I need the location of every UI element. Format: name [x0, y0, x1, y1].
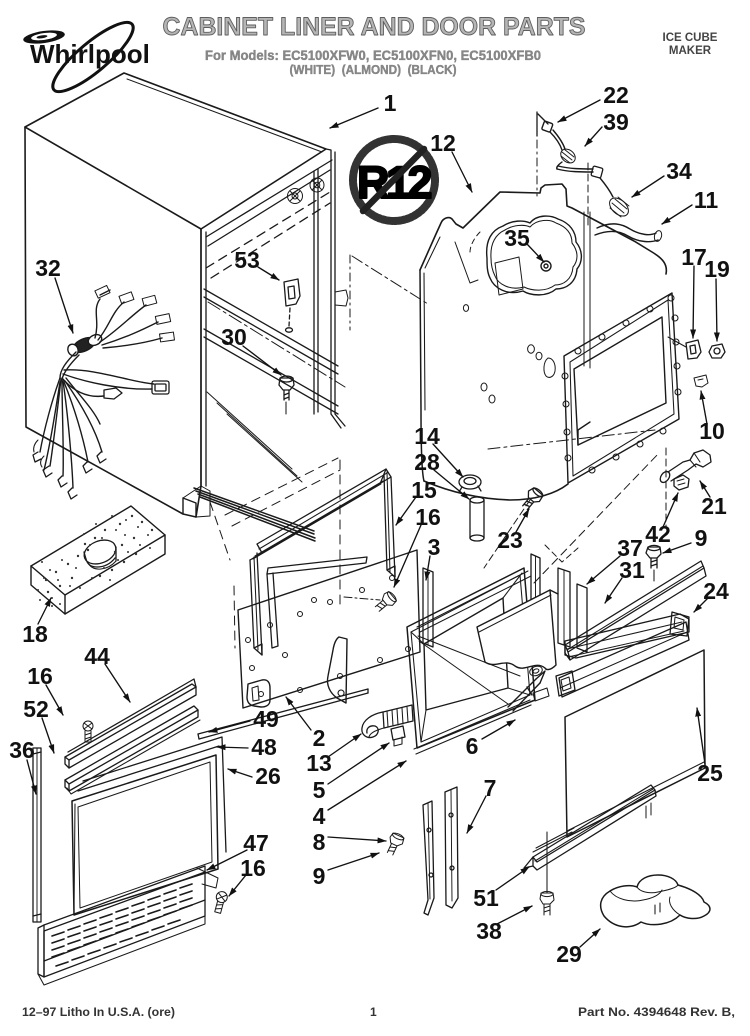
svg-text:44: 44 — [84, 643, 110, 669]
svg-text:36: 36 — [9, 737, 35, 763]
svg-text:16: 16 — [27, 663, 53, 689]
svg-text:19: 19 — [704, 256, 730, 282]
svg-text:53: 53 — [234, 247, 260, 273]
svg-text:12–97 Litho In U.S.A. (ore): 12–97 Litho In U.S.A. (ore) — [22, 1005, 175, 1019]
svg-text:3: 3 — [428, 534, 441, 560]
svg-text:For Models: EC5100XFW0, EC5100: For Models: EC5100XFW0, EC5100XFN0, EC51… — [205, 48, 541, 63]
svg-text:26: 26 — [255, 763, 281, 789]
svg-text:49: 49 — [253, 706, 279, 732]
svg-text:14: 14 — [414, 423, 440, 449]
svg-text:12: 12 — [430, 130, 456, 156]
svg-text:11: 11 — [694, 187, 719, 213]
svg-text:17: 17 — [681, 244, 707, 270]
svg-text:42: 42 — [645, 521, 671, 547]
svg-text:16: 16 — [240, 855, 266, 881]
svg-text:10: 10 — [699, 418, 725, 444]
svg-text:CABINET LINER AND DOOR PARTS: CABINET LINER AND DOOR PARTS — [163, 13, 586, 41]
svg-text:5: 5 — [313, 777, 326, 803]
svg-text:21: 21 — [701, 493, 727, 519]
svg-text:9: 9 — [313, 863, 326, 889]
svg-text:(WHITE) (ALMOND) (BLACK): (WHITE) (ALMOND) (BLACK) — [290, 62, 457, 77]
svg-text:Part No. 4394648 Rev. B,: Part No. 4394648 Rev. B, — [578, 1005, 735, 1019]
svg-text:ICE CUBE: ICE CUBE — [663, 32, 718, 44]
svg-text:8: 8 — [313, 829, 326, 855]
svg-text:47: 47 — [243, 830, 269, 856]
svg-text:35: 35 — [504, 225, 530, 251]
svg-text:31: 31 — [619, 557, 645, 583]
svg-text:4: 4 — [313, 803, 326, 829]
svg-text:39: 39 — [603, 109, 629, 135]
svg-text:13: 13 — [306, 750, 332, 776]
svg-text:6: 6 — [466, 733, 479, 759]
svg-text:29: 29 — [556, 941, 582, 967]
svg-text:22: 22 — [603, 82, 629, 108]
svg-text:Whirlpool: Whirlpool — [30, 39, 150, 69]
svg-text:1: 1 — [384, 90, 397, 116]
svg-text:7: 7 — [484, 775, 497, 801]
svg-text:15: 15 — [411, 477, 437, 503]
svg-text:30: 30 — [221, 324, 247, 350]
svg-text:1: 1 — [370, 1005, 377, 1019]
svg-text:25: 25 — [697, 760, 723, 786]
svg-text:32: 32 — [35, 255, 61, 281]
svg-text:18: 18 — [22, 621, 48, 647]
svg-text:51: 51 — [473, 885, 499, 911]
svg-text:52: 52 — [23, 696, 49, 722]
svg-text:MAKER: MAKER — [669, 45, 712, 57]
svg-text:24: 24 — [703, 578, 729, 604]
svg-text:38: 38 — [476, 918, 502, 944]
svg-text:34: 34 — [666, 158, 692, 184]
svg-text:2: 2 — [313, 725, 326, 751]
svg-text:23: 23 — [497, 527, 523, 553]
svg-text:28: 28 — [414, 449, 440, 475]
svg-text:9: 9 — [695, 525, 708, 551]
svg-text:48: 48 — [251, 734, 277, 760]
svg-text:16: 16 — [415, 504, 441, 530]
